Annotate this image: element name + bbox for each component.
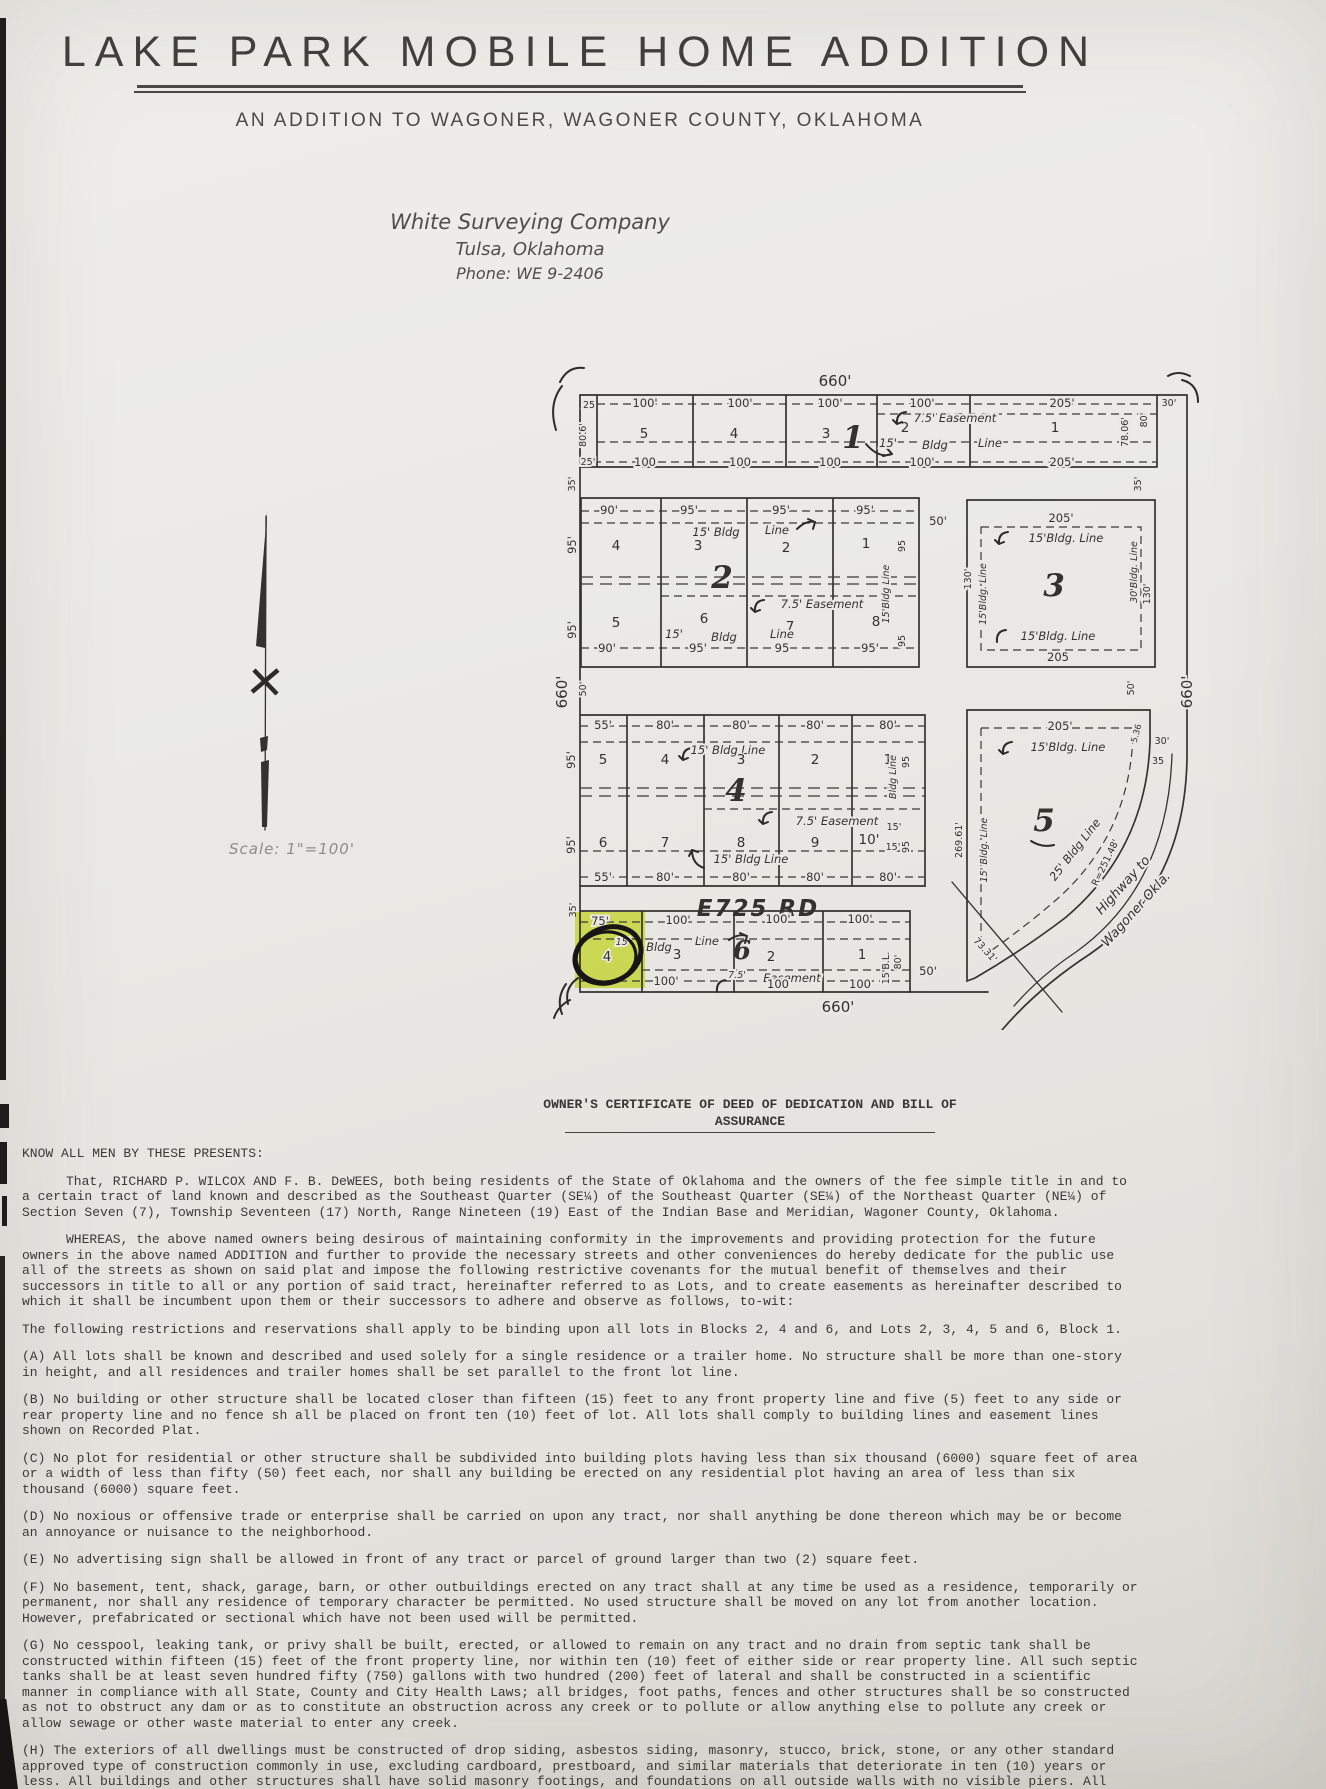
b6-bldg-line-label: Line bbox=[695, 934, 719, 948]
title-underline bbox=[137, 85, 1023, 88]
hand-mark-bottom-left bbox=[560, 984, 566, 1014]
block-3: 205' 15'Bldg. Line 3 15'Bldg. Line 205 1… bbox=[963, 500, 1155, 667]
surveyor-city: Tulsa, Oklahoma bbox=[230, 239, 830, 260]
b1-lot-1: 1 bbox=[1051, 420, 1060, 436]
b4-lot-10: 10' bbox=[859, 832, 880, 848]
b2-lot-1: 1 bbox=[862, 536, 871, 552]
b1-right-dim: 30' bbox=[1162, 398, 1177, 409]
outer-dim-top: 660' bbox=[819, 372, 852, 390]
b4-right-dim: 15' bbox=[887, 822, 902, 833]
b2-right-dim: 95 bbox=[897, 540, 908, 552]
b4-bottom-dim: 80' bbox=[732, 870, 750, 884]
b2-lot-4: 4 bbox=[612, 538, 621, 554]
b4-bottom-dim: 80' bbox=[806, 870, 824, 884]
b1-bldg-line-label: Bldg bbox=[922, 438, 948, 452]
b1-top-dim: 100' bbox=[909, 396, 934, 410]
street1-width-left: 35' bbox=[567, 477, 578, 492]
scan-edge-mark bbox=[0, 1104, 9, 1128]
plat-map: Scale: 1"=100' 660' 660' 660' 660' 100' … bbox=[0, 330, 1326, 1030]
scanned-plat-document: LAKE PARK MOBILE HOME ADDITION AN ADDITI… bbox=[0, 0, 1326, 1789]
block-4: 55' 80' 80' 80' 80' 15' Bldg Line 5 4 3 … bbox=[564, 715, 925, 886]
b5-left-bldg-line: 15' Bldg. Line bbox=[979, 817, 990, 882]
north-arrow bbox=[252, 512, 278, 830]
surveyor-name: White Surveying Company bbox=[230, 210, 830, 234]
surveyor-block: White Surveying Company Tulsa, Oklahoma … bbox=[230, 210, 830, 283]
b5-right-30: 30' bbox=[1155, 736, 1170, 747]
block-2: 90' 95' 95' 95' 4 3 2 1 15' Bldg Line 2 … bbox=[565, 498, 947, 667]
b1-easement-label: 7.5' Easement bbox=[914, 411, 997, 425]
title-underline bbox=[134, 91, 1026, 94]
b5-diag-dim: 73.31' bbox=[971, 936, 999, 965]
b5-right-35: 35 bbox=[1152, 756, 1164, 767]
b2-bldg-line-label: Bldg bbox=[711, 630, 737, 644]
certificate-heading-line1: OWNER'S CERTIFICATE OF DEED OF DEDICATIO… bbox=[420, 1096, 1080, 1113]
presents-line: KNOW ALL MEN BY THESE PRESENTS: bbox=[22, 1146, 1140, 1162]
b3-top-dim: 205' bbox=[1048, 511, 1073, 525]
block-1: 100' 100' 100' 100' 205' 25 80.6' 25' 5 … bbox=[578, 395, 1176, 469]
b2-left-dim: 95' bbox=[565, 621, 579, 639]
b1-left-mid-dim: 80.6' bbox=[578, 423, 589, 447]
b6-bottom-dim: 100 bbox=[767, 977, 789, 991]
b4-top-dim: 80' bbox=[879, 718, 897, 732]
b6-top-dim: 100' bbox=[665, 913, 690, 927]
restriction-item-d: (D) No noxious or offensive trade or ent… bbox=[22, 1509, 1140, 1540]
b1-bottom-dim: 100 bbox=[729, 455, 751, 469]
b1-right-dim: 78.06' bbox=[1120, 417, 1131, 447]
b2-lot-6: 6 bbox=[700, 611, 709, 627]
paragraph-owners: That, RICHARD P. WILCOX AND F. B. DeWEES… bbox=[22, 1174, 1140, 1221]
b4-top-dim: 80' bbox=[732, 718, 750, 732]
page-title: LAKE PARK MOBILE HOME ADDITION bbox=[40, 28, 1120, 77]
street2-width-left: 50' bbox=[578, 682, 589, 697]
paragraph-whereas: WHEREAS, the above named owners being de… bbox=[22, 1232, 1140, 1310]
b1-bottom-dim: 100 bbox=[819, 455, 841, 469]
b6-right-dim: 80' bbox=[893, 955, 904, 970]
b3-bldg-hook bbox=[995, 532, 1008, 544]
b2-easement-hook bbox=[751, 600, 764, 612]
b6-bldg-line-label: Bldg bbox=[646, 940, 672, 954]
b1-lot-3: 3 bbox=[822, 426, 831, 442]
b6-bottom-dim: 100 bbox=[849, 977, 871, 991]
b6-easement-hook bbox=[717, 980, 726, 992]
b4-lot-6: 6 bbox=[599, 835, 608, 851]
b4-easement-hook bbox=[759, 812, 772, 824]
b2-bottom-dim: 95' bbox=[689, 641, 707, 655]
map-boundary bbox=[580, 395, 1187, 1030]
b1-top-dim: 100' bbox=[727, 396, 752, 410]
b4-top-dim: 80' bbox=[806, 718, 824, 732]
b2-bldg-line-label: 15' Bldg bbox=[692, 525, 739, 539]
b6-lot-4: 4 bbox=[603, 949, 612, 965]
b2-right-bldg-line: 15'Bldg Line bbox=[881, 564, 892, 623]
b6-block-number: 6 bbox=[733, 936, 751, 966]
street1-width-right: 35' bbox=[1133, 477, 1144, 492]
b6-bottom-dim: 100' bbox=[653, 974, 678, 988]
b6-right-bldg-line: 15'B.L. bbox=[881, 952, 892, 985]
street-name-e725: E725 RD bbox=[697, 896, 820, 922]
b1-top-dim: 100' bbox=[632, 396, 657, 410]
b2-right-dim: 95 bbox=[897, 635, 908, 647]
b3-bldg-line-label-bottom: 15'Bldg. Line bbox=[1021, 629, 1096, 643]
street-width-b6: 50' bbox=[919, 964, 937, 978]
b3-right-bldg-line: 30'Bldg. Line bbox=[1129, 541, 1140, 603]
b1-lot-4: 4 bbox=[730, 426, 739, 442]
b4-bldg-arrow-bottom bbox=[689, 850, 704, 868]
b6-top-dim: 100' bbox=[847, 912, 872, 926]
b5-dim-536: 5.36 bbox=[1130, 723, 1145, 744]
b3-right-dim: 130' bbox=[1142, 584, 1153, 605]
b4-top-dim: 55' bbox=[594, 718, 612, 732]
restriction-item-g: (G) No cesspool, leaking tank, or privy … bbox=[22, 1638, 1140, 1731]
b3-bldg-line-label: 15'Bldg. Line bbox=[1029, 531, 1104, 545]
b5-number-underline bbox=[1031, 841, 1054, 846]
b4-bottom-dim: 80' bbox=[656, 870, 674, 884]
b4-left-dim: 95' bbox=[564, 751, 578, 769]
b2-top-dim: 95' bbox=[680, 503, 698, 517]
b6-lot-3: 3 bbox=[673, 947, 682, 963]
b1-block-number: 1 bbox=[842, 420, 864, 456]
restriction-item-f: (F) No basement, tent, shack, garage, ba… bbox=[22, 1580, 1140, 1627]
b2-bldg-line-label: Line bbox=[765, 523, 789, 537]
b6-lot-1: 1 bbox=[858, 947, 867, 963]
outer-dim-left: 660' bbox=[553, 676, 571, 709]
b2-bldg-line-label: Line bbox=[770, 627, 794, 641]
b4-right-dim: 95 bbox=[901, 756, 912, 768]
b3-left-dim: 130' bbox=[963, 569, 974, 590]
b1-right-dim: 80' bbox=[1139, 413, 1150, 428]
document-header: LAKE PARK MOBILE HOME ADDITION AN ADDITI… bbox=[40, 28, 1120, 132]
b1-top-dim: 205' bbox=[1049, 396, 1074, 410]
b2-top-dim: 95' bbox=[772, 503, 790, 517]
scan-edge-mark bbox=[2, 1196, 7, 1226]
b2-block-number: 2 bbox=[710, 560, 733, 596]
b2-top-dim: 95' bbox=[856, 503, 874, 517]
b4-bottom-dim: 80' bbox=[879, 870, 897, 884]
b5-block-number: 5 bbox=[1033, 803, 1055, 839]
outer-dim-right: 660' bbox=[1178, 676, 1196, 709]
b2-bottom-dim: 90' bbox=[598, 641, 616, 655]
b1-lot-5: 5 bbox=[640, 426, 649, 442]
b1-bottom-dim: 100 bbox=[634, 455, 656, 469]
street-width-b2-b3: 50' bbox=[929, 514, 947, 528]
b4-bldg-line-label-bottom: 15' Bldg Line bbox=[714, 852, 789, 866]
scale-note: Scale: 1"=100' bbox=[229, 840, 355, 858]
b6-top-dim: 100' bbox=[765, 912, 790, 926]
b5-bldg-line-label: 15'Bldg. Line bbox=[1031, 740, 1106, 754]
b2-bottom-dim: 95' bbox=[861, 641, 879, 655]
b4-left-dim: 95' bbox=[564, 836, 578, 854]
b1-left-bottom-dim: 25' bbox=[581, 457, 596, 468]
street2-width-right: 50' bbox=[1126, 681, 1137, 696]
b4-right-dim: 95 bbox=[901, 841, 912, 853]
restriction-item-a: (A) All lots shall be known and describe… bbox=[22, 1349, 1140, 1380]
b4-bldg-line-label: 15' Bldg Line bbox=[691, 743, 766, 757]
b1-left-top-dim: 25 bbox=[583, 400, 595, 411]
restriction-item-b: (B) No building or other structure shall… bbox=[22, 1392, 1140, 1439]
b1-top-dim: 100' bbox=[817, 396, 842, 410]
block-6: 75' 100' 100' 100' 15' Bldg Line 4 3 2 1… bbox=[554, 911, 937, 1018]
restriction-item-c: (C) No plot for residential or other str… bbox=[22, 1451, 1140, 1498]
b1-bldg-line-label: Line bbox=[978, 436, 1002, 450]
surveyor-phone: Phone: WE 9-2406 bbox=[230, 264, 830, 283]
b4-lot-8: 8 bbox=[737, 835, 746, 851]
certificate-body: KNOW ALL MEN BY THESE PRESENTS: That, RI… bbox=[22, 1146, 1140, 1789]
b4-bottom-dim: 55' bbox=[594, 870, 612, 884]
b4-lot-7: 7 bbox=[661, 835, 670, 851]
b1-bottom-dim: 205' bbox=[1049, 455, 1074, 469]
block-5: 205' 15'Bldg. Line 5 269.61' 15' Bldg. L… bbox=[952, 710, 1174, 1012]
b2-bottom-dim: 95 bbox=[775, 641, 790, 655]
b4-right-bldg-line: Bldg Line bbox=[888, 755, 899, 799]
b4-easement-label: 7.5' Easement bbox=[796, 814, 879, 828]
b4-lot-4: 4 bbox=[661, 752, 670, 768]
b3-block-number: 3 bbox=[1043, 568, 1065, 604]
paragraph-restrictions-intro: The following restrictions and reservati… bbox=[22, 1322, 1140, 1338]
b5-top-dim: 205' bbox=[1047, 719, 1072, 733]
b4-extra-dim: 15' bbox=[886, 842, 901, 853]
b3-left-bldg-line: 15'Bldg. Line bbox=[978, 563, 989, 625]
b2-arrow bbox=[797, 519, 815, 529]
b1-bldg-line-label: 15' bbox=[879, 436, 897, 450]
scan-edge-mark bbox=[0, 1142, 7, 1184]
b4-lot-2: 2 bbox=[811, 752, 820, 768]
b2-lot-3: 3 bbox=[694, 538, 703, 554]
restriction-item-h: (H) The exteriors of all dwellings must … bbox=[22, 1743, 1140, 1789]
b6-easement-label: 7.5' bbox=[728, 970, 746, 981]
b2-lot-5: 5 bbox=[612, 615, 621, 631]
b3-bldg-hook-bottom bbox=[997, 630, 1006, 642]
b4-block-number: 4 bbox=[725, 773, 747, 809]
b4-lot-9: 9 bbox=[811, 835, 820, 851]
b3-bottom-dim: 205 bbox=[1047, 650, 1069, 664]
b5-bldg-hook bbox=[999, 742, 1012, 754]
b4-lot-5: 5 bbox=[599, 752, 608, 768]
b2-bldg-line-label: 15' bbox=[665, 627, 683, 641]
b4-top-dim: 80' bbox=[656, 718, 674, 732]
b4-lot-3: 3 bbox=[737, 752, 746, 768]
certificate-heading: OWNER'S CERTIFICATE OF DEED OF DEDICATIO… bbox=[420, 1096, 1080, 1133]
b1-bottom-dim: 100' bbox=[909, 455, 934, 469]
b2-easement-label: 7.5' Easement bbox=[781, 597, 864, 611]
restriction-item-e: (E) No advertising sign shall be allowed… bbox=[22, 1552, 1140, 1568]
b5-left-dim: 269.61' bbox=[954, 822, 965, 858]
b6-lot-2: 2 bbox=[767, 949, 776, 965]
certificate-heading-line2: ASSURANCE bbox=[565, 1113, 935, 1133]
b2-top-dim: 90' bbox=[600, 503, 618, 517]
b2-left-dim: 95' bbox=[565, 536, 579, 554]
b2-lot-2: 2 bbox=[782, 540, 791, 556]
page-subtitle: AN ADDITION TO WAGONER, WAGONER COUNTY, … bbox=[40, 110, 1120, 132]
b2-lot-8: 8 bbox=[872, 614, 881, 630]
outer-dim-bottom: 660' bbox=[822, 998, 855, 1016]
scan-corner-blob bbox=[0, 1699, 18, 1789]
